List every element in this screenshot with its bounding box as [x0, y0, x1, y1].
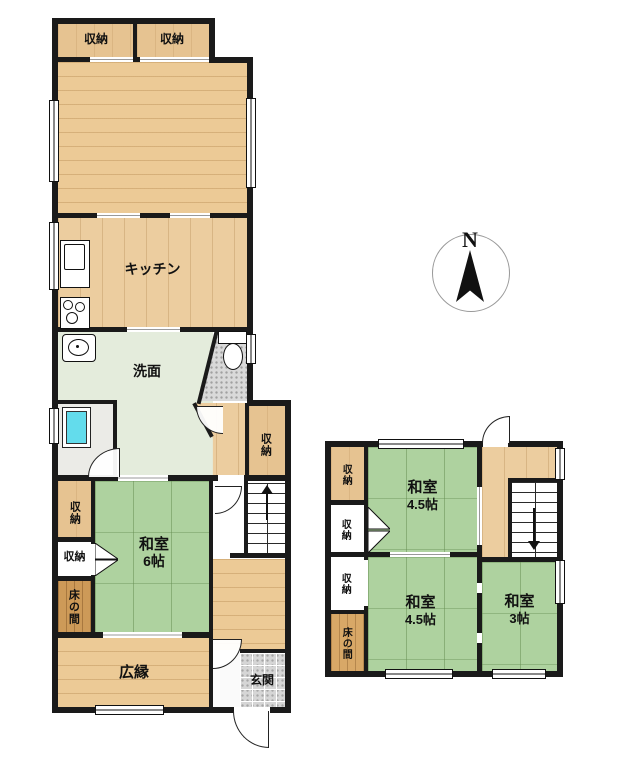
- doorway: [477, 633, 482, 643]
- wall: [482, 557, 557, 562]
- washitsu-north-label: 和室 4.5帖: [390, 480, 455, 514]
- wall: [325, 500, 368, 505]
- window: [385, 669, 453, 679]
- floorplan-image: 収納 収納 キッチン 洗面 収納 収納 収納 床の間 和室 6帖 広縁 玄関 N: [0, 0, 617, 774]
- washitsu-south-label: 和室 4.5帖: [388, 595, 453, 629]
- storage-label: 収納: [339, 511, 350, 549]
- room-size: 4.5帖: [407, 497, 438, 512]
- tokonoma-label: 床の間: [340, 617, 351, 669]
- wall: [325, 610, 368, 614]
- room-size: 4.5帖: [405, 612, 436, 627]
- storage-label: 収納: [339, 564, 350, 604]
- second-floor-plan: 収納 収納 収納 床の間 和室 4.5帖 和室 4.5帖 和室 3帖: [0, 0, 617, 774]
- doorway: [477, 583, 482, 593]
- wall: [364, 447, 368, 671]
- window: [492, 669, 546, 679]
- room-name: 和室: [405, 594, 435, 611]
- window: [378, 439, 464, 449]
- window: [555, 560, 565, 604]
- storage-label: 収納: [340, 455, 351, 495]
- doorway: [364, 560, 368, 606]
- washitsu-east-label: 和室 3帖: [487, 594, 552, 628]
- wall: [477, 557, 482, 671]
- double-door-icon: [368, 507, 390, 553]
- wall: [508, 478, 512, 558]
- stair-hall-door: [482, 416, 510, 443]
- wall: [508, 478, 557, 482]
- room-name: 和室: [504, 593, 534, 610]
- room-name: 和室: [407, 479, 437, 496]
- wall: [325, 441, 331, 677]
- sliding-door: [390, 552, 450, 557]
- down-arrow-icon: [533, 508, 535, 541]
- sliding-door: [477, 487, 482, 545]
- wall: [325, 552, 368, 557]
- room-size: 3帖: [509, 611, 529, 626]
- window: [555, 448, 565, 480]
